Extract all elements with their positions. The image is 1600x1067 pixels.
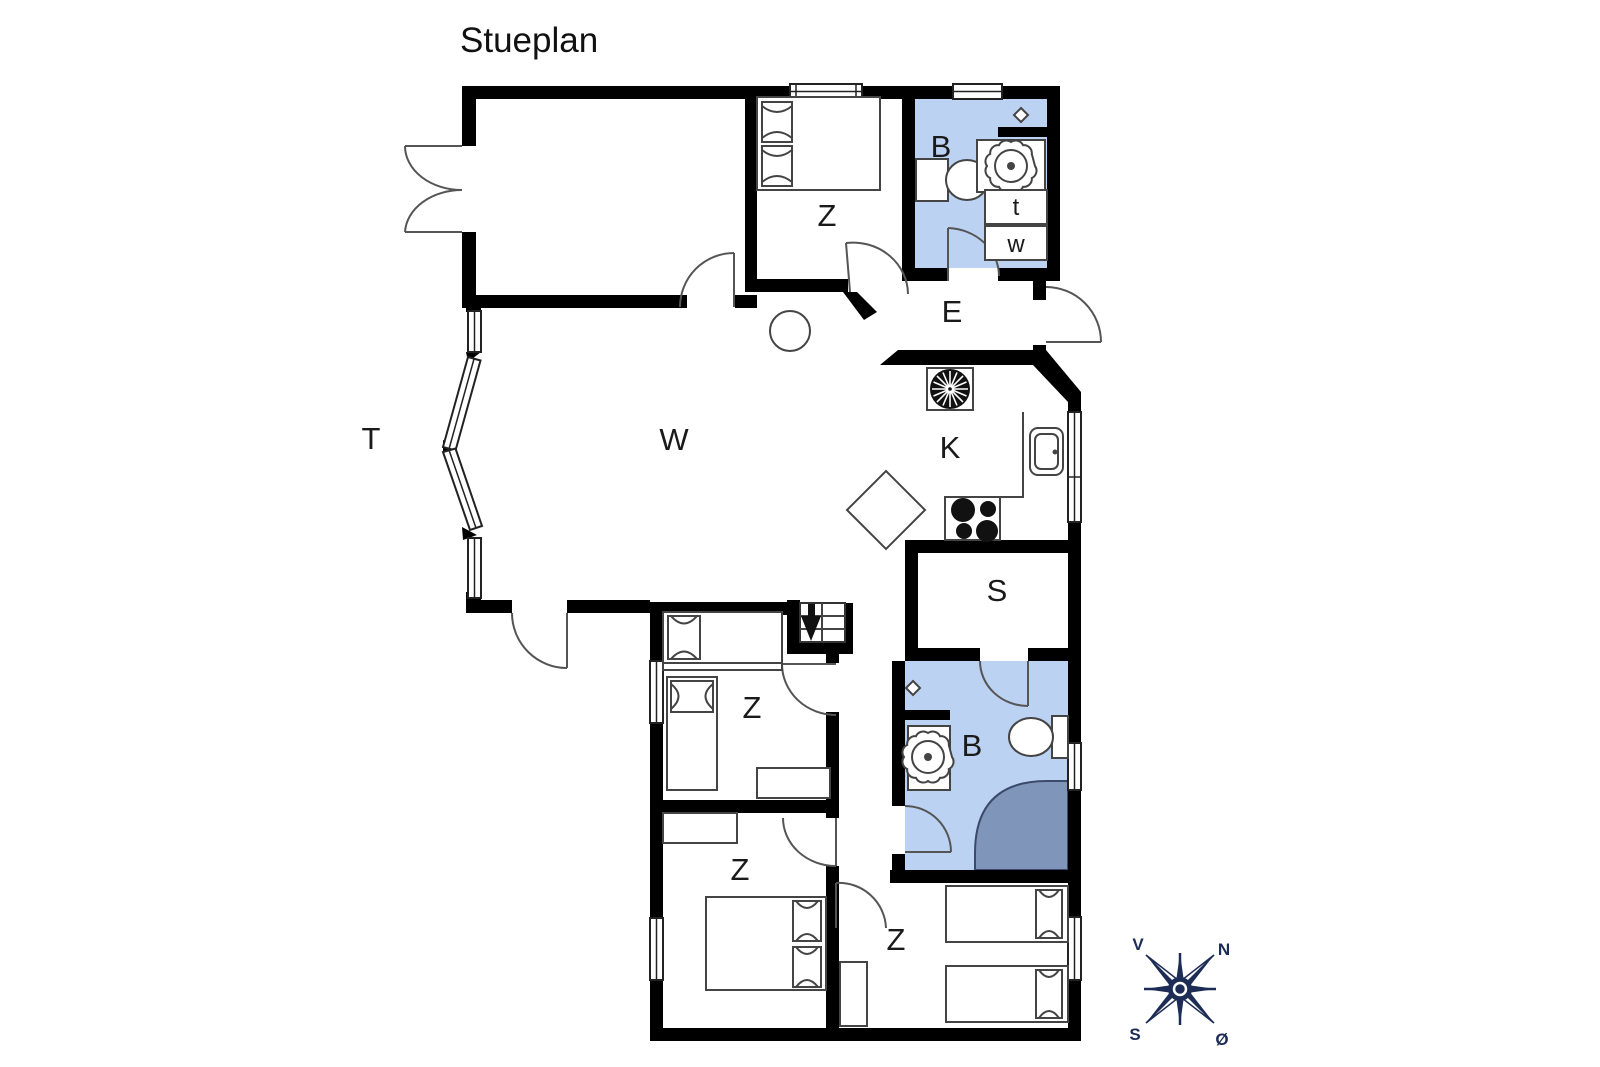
kitchen-sink-icon bbox=[1030, 428, 1063, 475]
room-label-bed-bottom-left: Z bbox=[731, 852, 750, 887]
stairs-icon bbox=[800, 603, 845, 642]
compass-south-label: S bbox=[1129, 1025, 1140, 1044]
window bbox=[650, 661, 663, 723]
room-label-bed-bottom-right: Z bbox=[887, 922, 906, 957]
door-arc bbox=[680, 253, 734, 307]
shelf bbox=[663, 663, 782, 670]
window bbox=[1068, 412, 1081, 522]
stove-icon bbox=[945, 497, 1000, 542]
double-bed-icon bbox=[757, 97, 880, 190]
compass-north-label: N bbox=[1218, 940, 1230, 959]
door-arc bbox=[846, 243, 908, 294]
round-table-icon bbox=[770, 311, 810, 351]
window bbox=[650, 918, 663, 980]
room-label-terrace: T bbox=[362, 421, 381, 456]
compass-east-label: Ø bbox=[1215, 1030, 1228, 1049]
window bbox=[1068, 743, 1081, 790]
compass-west-label: V bbox=[1132, 935, 1144, 954]
double-door-arc bbox=[405, 146, 462, 232]
room-label-bath-bottom: B bbox=[962, 728, 983, 763]
door-arc bbox=[1046, 287, 1101, 342]
room-label-sauna: S bbox=[987, 573, 1008, 608]
room-label-bed-mid: Z bbox=[743, 690, 762, 725]
single-bed-icon bbox=[663, 612, 782, 663]
room-label-bath-top: B bbox=[931, 129, 952, 164]
door-arc bbox=[782, 664, 836, 715]
single-bed-icon bbox=[667, 677, 717, 790]
toilet-icon bbox=[1009, 716, 1068, 758]
label-dryer: t bbox=[1013, 194, 1020, 221]
floor-plan-page: Stueplan T W K E S B B Z Z Z Z t w bbox=[0, 0, 1600, 1067]
desk bbox=[663, 813, 737, 843]
door-arc bbox=[836, 883, 886, 928]
door-arc bbox=[512, 613, 567, 668]
label-washer: w bbox=[1006, 231, 1025, 258]
window bbox=[1068, 917, 1081, 980]
single-bed-icon bbox=[946, 886, 1068, 942]
sink-icon bbox=[977, 140, 1045, 192]
door-arc bbox=[783, 818, 836, 866]
extractor-fan-icon bbox=[927, 368, 973, 410]
double-bed-icon bbox=[706, 897, 826, 990]
corner-table-icon bbox=[847, 471, 925, 549]
sink-icon bbox=[902, 726, 953, 790]
closet bbox=[840, 962, 867, 1026]
dresser bbox=[757, 768, 830, 798]
room-label-entrance: E bbox=[942, 294, 963, 329]
window bbox=[953, 84, 1002, 99]
room-label-bed-top: Z bbox=[818, 198, 837, 233]
floor-plan: Stueplan T W K E S B B Z Z Z Z t w bbox=[0, 0, 1600, 1067]
room-label-living: W bbox=[659, 422, 689, 457]
single-bed-icon bbox=[946, 966, 1068, 1022]
room-label-kitchen: K bbox=[940, 430, 961, 465]
page-title: Stueplan bbox=[460, 21, 598, 60]
kitchen-counter bbox=[1000, 412, 1023, 497]
compass-rose: V N S Ø bbox=[1129, 935, 1230, 1049]
